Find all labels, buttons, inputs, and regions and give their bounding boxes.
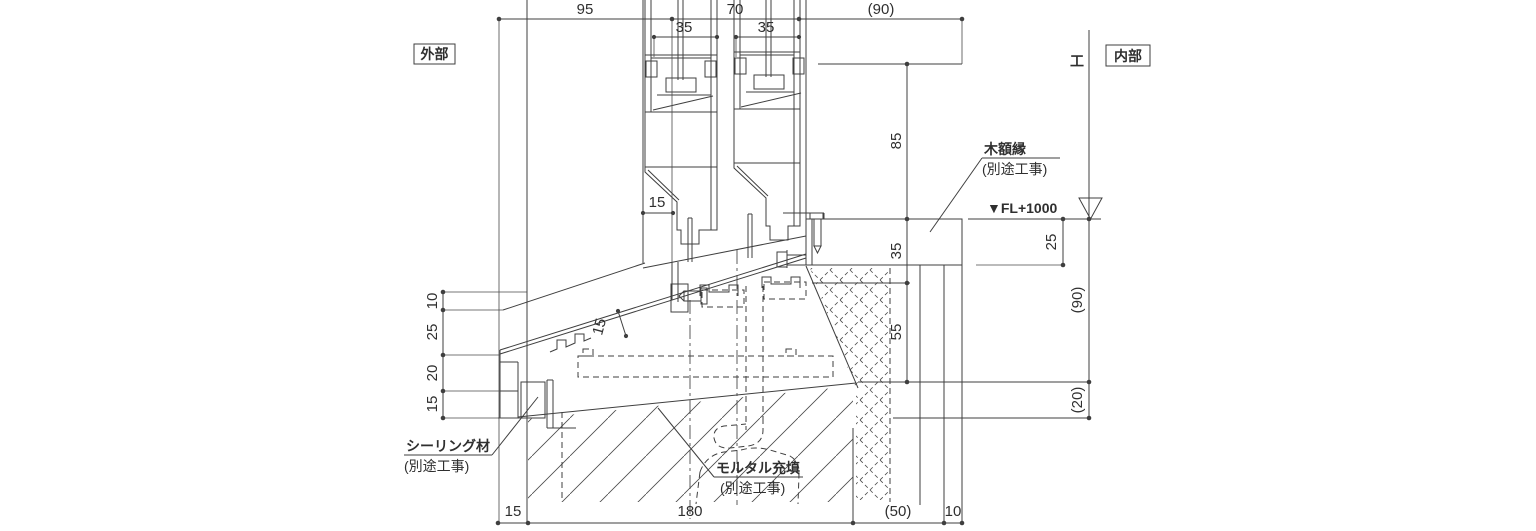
undersill-clips xyxy=(700,277,806,307)
dim-15-gap: 15 xyxy=(649,194,666,211)
window-sash-assembly xyxy=(643,0,806,263)
dim-180: 180 xyxy=(677,503,702,520)
dim-25-left: 25 xyxy=(424,324,441,341)
exterior-label-text: 外部 xyxy=(421,46,449,62)
dim-50p: (50) xyxy=(885,503,912,520)
subsill-sheet-upper xyxy=(500,254,806,350)
subsill-sheet-lower xyxy=(500,258,806,354)
callout-sealing-title: シーリング材 xyxy=(406,438,490,454)
dim-20-left: 20 xyxy=(424,365,441,382)
sash-bottom-rail xyxy=(734,109,800,240)
dimension-left-chain: 10 25 20 15 xyxy=(424,290,445,421)
dim-15-bottom: 15 xyxy=(505,503,522,520)
dim-85: 85 xyxy=(888,133,905,150)
glazing-bead xyxy=(741,93,801,107)
dimension-gap-15: 15 xyxy=(641,194,675,215)
interior-sash xyxy=(734,0,804,240)
dim-90p-right: (90) xyxy=(1069,287,1086,314)
dimension-top-chain: 95 70 (90) xyxy=(497,1,965,21)
fl-level-triangle-icon xyxy=(1079,198,1102,219)
dimension-fl-offset-25: 25 xyxy=(1043,217,1065,268)
callout-wood-frame: 木額縁 (別途工事) xyxy=(930,141,1060,232)
dim-35-right: 35 xyxy=(888,243,905,260)
glazing-bead xyxy=(653,96,713,110)
sealant-backer xyxy=(521,382,545,418)
interior-label-text: 内部 xyxy=(1114,48,1142,64)
cad-sheet: 95 70 (90) 35 35 15 10 25 20 15 xyxy=(0,0,1536,531)
dim-35-b: 35 xyxy=(758,19,775,36)
window-sill-section-drawing: 95 70 (90) 35 35 15 10 25 20 15 xyxy=(0,0,1536,531)
setting-block xyxy=(666,78,696,92)
dim-10-left: 10 xyxy=(424,293,441,310)
fl-level-marker: ▼FL+1000 xyxy=(968,198,1102,219)
dim-95: 95 xyxy=(577,1,594,18)
wall-structure xyxy=(518,0,1089,523)
glazing-gasket xyxy=(793,58,804,74)
exterior-label: 外部 xyxy=(414,44,455,64)
dim-35-a: 35 xyxy=(676,19,693,36)
dimension-right-inner-chain: 85 35 55 xyxy=(888,62,909,385)
callout-wood-sub: (別途工事) xyxy=(982,161,1047,177)
dim-55: 55 xyxy=(888,324,905,341)
dimension-slope-15: 15 xyxy=(589,309,628,338)
fl-label-text: ▼FL+1000 xyxy=(987,200,1057,216)
wood-frame-hatch xyxy=(812,219,962,265)
dim-10-bottom: 10 xyxy=(945,503,962,520)
dim-20p-right: (20) xyxy=(1069,387,1086,414)
frame-jambs-and-rails xyxy=(643,0,806,263)
callout-mortar-sub: (別途工事) xyxy=(720,480,785,496)
dim-70: 70 xyxy=(727,1,744,18)
dim-90p: (90) xyxy=(868,1,895,18)
dimension-bottom-chain: 15 180 (50) 10 xyxy=(496,503,965,525)
callout-wood-title: 木額縁 xyxy=(983,141,1026,157)
kanji-label: 工 xyxy=(1070,53,1084,69)
callout-sealing-sub: (別途工事) xyxy=(404,458,469,474)
dimension-sash-35: 35 35 xyxy=(652,19,801,39)
concrete-hatch xyxy=(528,386,853,502)
dimension-right-outer-chain: (90) (20) xyxy=(1069,30,1091,420)
dim-15-left: 15 xyxy=(424,396,441,413)
dim-15-slope: 15 xyxy=(589,317,610,338)
interior-label: 内部 xyxy=(1106,45,1150,66)
setting-block xyxy=(754,75,784,89)
callout-mortar-title: モルタル充填 xyxy=(716,460,800,476)
drip-leg-line xyxy=(503,263,645,310)
leader-line xyxy=(930,158,982,232)
dim-25-fl: 25 xyxy=(1043,234,1060,251)
